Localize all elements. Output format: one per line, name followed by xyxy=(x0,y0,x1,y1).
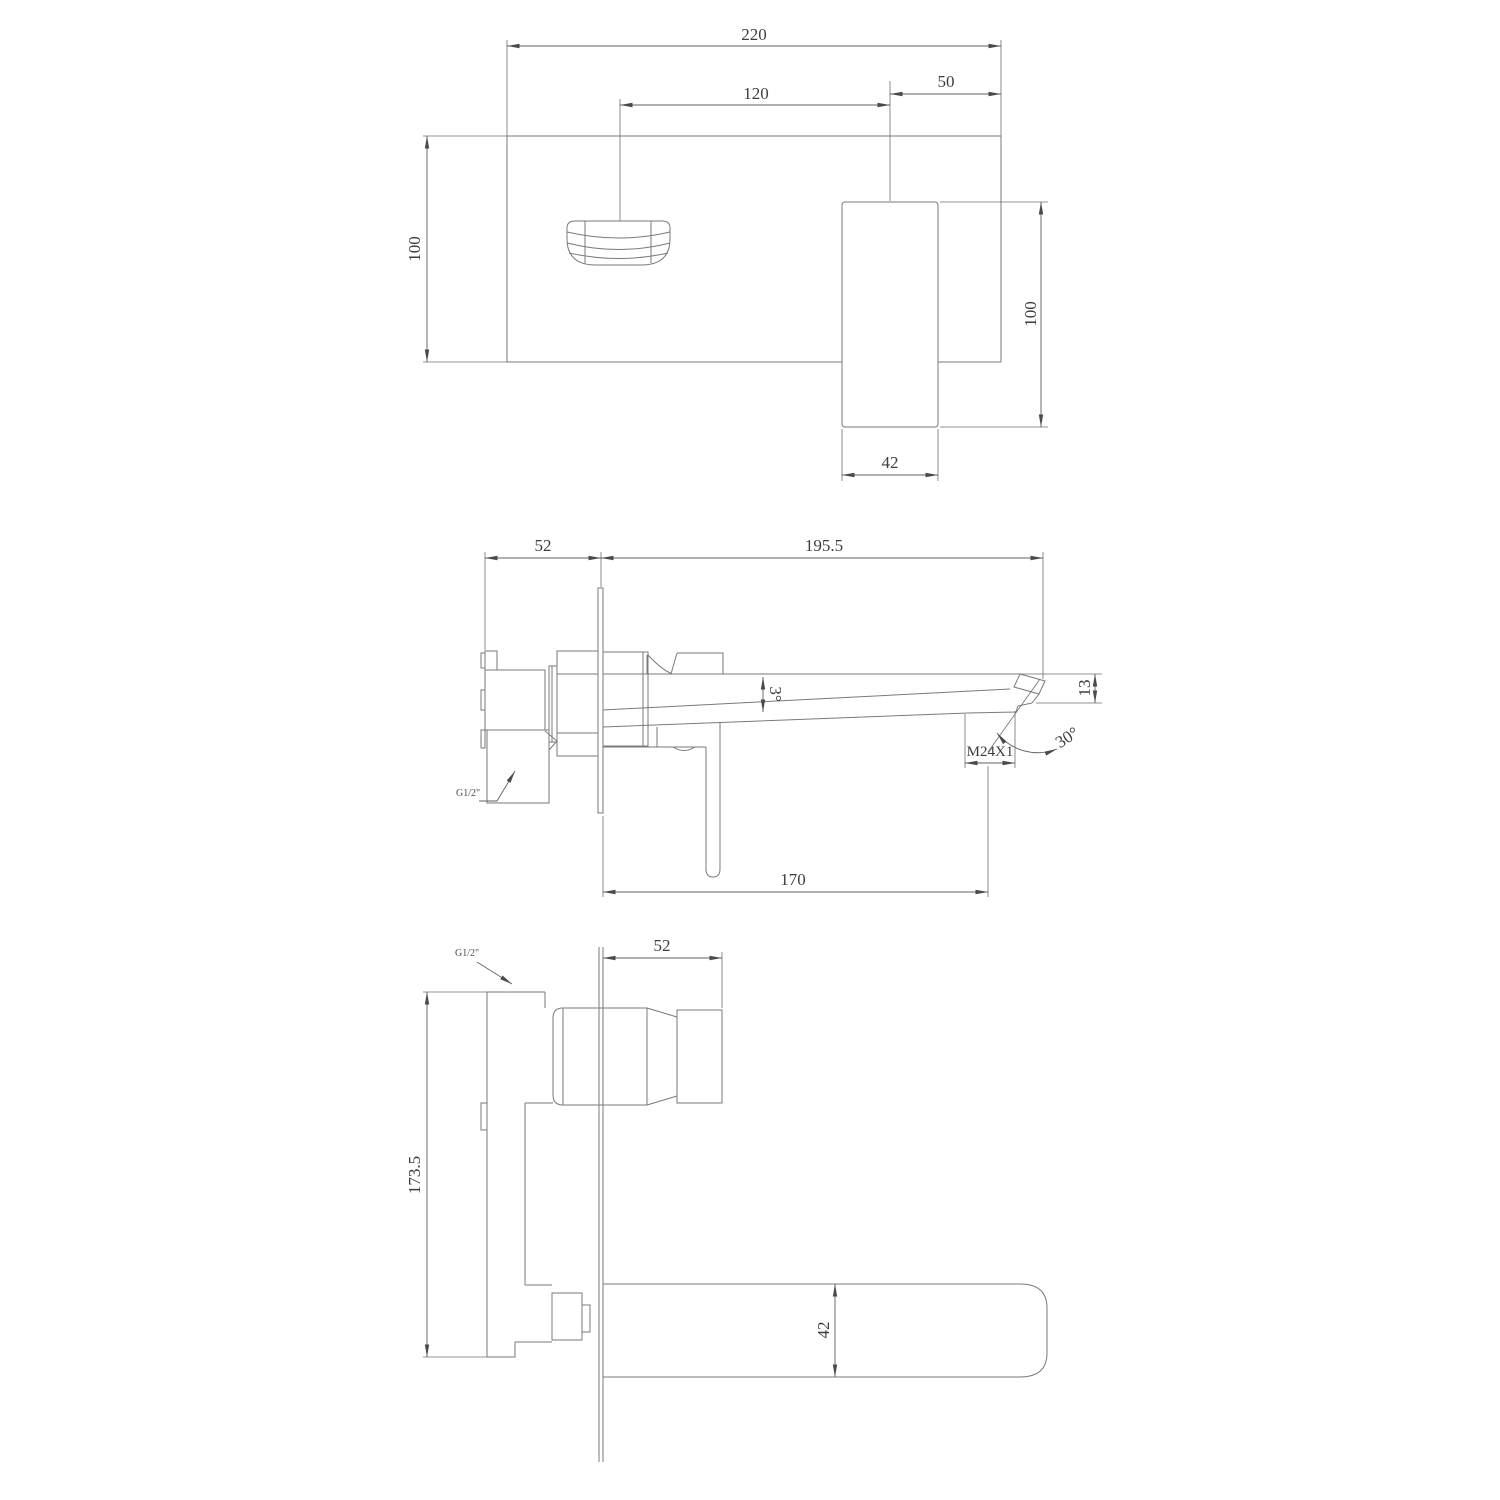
dim-label-spout-width: 42 xyxy=(814,1322,833,1339)
mounting-thread-block xyxy=(549,666,557,742)
dim-label-taper-angle: 3° xyxy=(766,686,785,701)
label-inlet-thread-vertical: G1/2" xyxy=(455,948,479,959)
technical-drawing-page: 220 120 50 100 100 42 xyxy=(0,0,1500,1500)
housing-main xyxy=(563,1008,647,1105)
body-lug-1 xyxy=(481,653,485,668)
spout-connector xyxy=(552,1293,582,1340)
dim-label-spout-offset: 120 xyxy=(743,84,769,103)
housing-taper-top xyxy=(647,1008,677,1017)
dim-label-aerator-offset: 170 xyxy=(780,870,806,889)
dim-label-plate-height: 100 xyxy=(405,236,424,262)
dim-label-aerator-thread: M24X1 xyxy=(967,744,1014,760)
spout-tip-face xyxy=(1032,694,1039,703)
housing-rear-block xyxy=(677,1010,722,1103)
valve-body-chamfer xyxy=(545,731,557,750)
dim-label-tip-angle: 30° xyxy=(1052,723,1082,752)
dim-label-handle-width: 42 xyxy=(882,453,899,472)
handle-lever-top xyxy=(647,653,723,674)
handle-outline xyxy=(842,202,938,427)
housing-taper-bottom xyxy=(647,1096,677,1105)
housing-end-cap xyxy=(553,1008,563,1105)
spout-tip-facet xyxy=(1014,674,1045,694)
label-inlet-thread-side: G1/2" xyxy=(456,788,480,799)
dim-label-plate-width: 220 xyxy=(741,25,767,44)
front-view: 220 120 50 100 100 42 xyxy=(405,25,1048,481)
valve-body-main xyxy=(485,670,545,730)
leader-inlet-thread-vertical xyxy=(477,962,512,984)
leader-inlet-thread-side xyxy=(479,771,515,801)
valve-body-lower xyxy=(487,730,549,803)
faucet-dimension-drawing: 220 120 50 100 100 42 xyxy=(0,0,1500,1500)
valve-body-top-step xyxy=(485,651,497,670)
handle-rod xyxy=(706,722,720,877)
body-lug-3 xyxy=(481,730,485,748)
spout-ring-line-2 xyxy=(567,243,670,250)
dim-label-total-height: 173.5 xyxy=(405,1156,424,1194)
vertical-view: G1/2" 52 173.5 42 xyxy=(405,936,1047,1462)
dim-label-spout-reach: 195.5 xyxy=(805,536,843,555)
side-view: 52 195.5 3° 13 30° M24X1 G1/2" 170 xyxy=(456,536,1102,897)
body-lug xyxy=(481,1103,487,1130)
cartridge-dome xyxy=(673,747,695,751)
spout-connector-stub xyxy=(582,1305,590,1332)
dim-label-handle-offset: 50 xyxy=(938,72,955,91)
body-lug-2 xyxy=(481,690,485,710)
spout-ring-line-3 xyxy=(569,253,668,259)
dim-label-embed-depth-vertical: 52 xyxy=(654,936,671,955)
dim-label-handle-length: 100 xyxy=(1021,301,1040,327)
handle-hub xyxy=(603,652,648,746)
dim-label-tip-height: 13 xyxy=(1075,680,1094,697)
mounting-lug-upper xyxy=(557,651,598,674)
spout-inner-edge xyxy=(603,689,1010,710)
dim-label-embed-depth: 52 xyxy=(535,536,552,555)
valve-body-outline xyxy=(487,992,552,1357)
mounting-lug-lower xyxy=(557,733,598,756)
spout-ring-line-1 xyxy=(567,232,670,238)
trim-plate-edge xyxy=(598,588,603,813)
